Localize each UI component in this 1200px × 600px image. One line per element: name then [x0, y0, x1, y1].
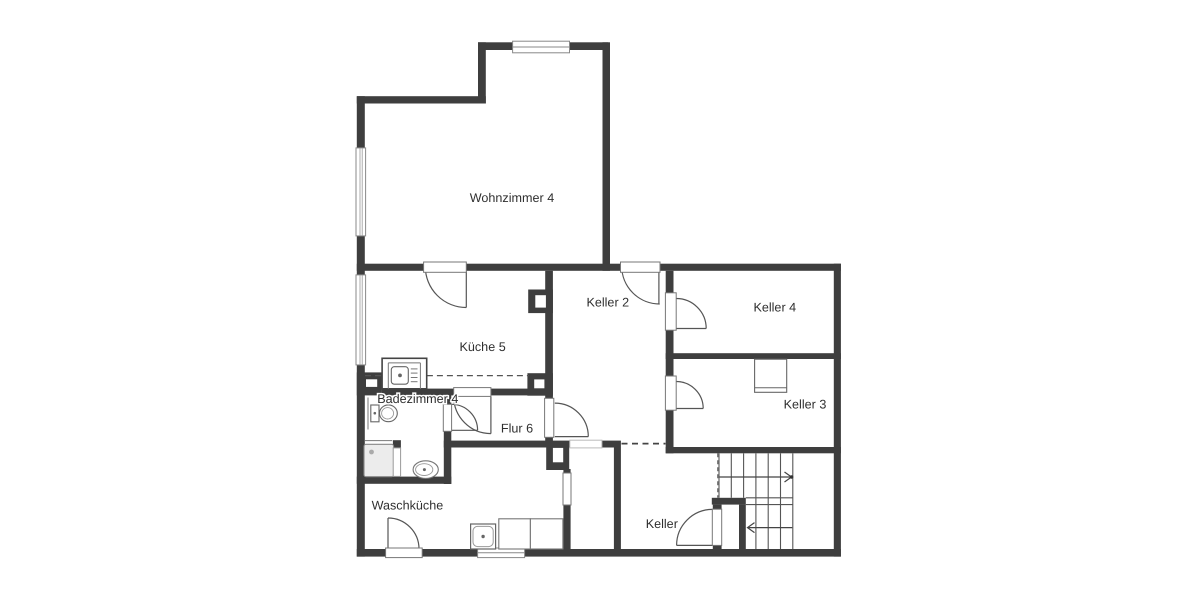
- svg-text:Keller: Keller: [646, 517, 678, 531]
- svg-text:Keller 3: Keller 3: [784, 398, 827, 412]
- svg-text:Badezimmer 4: Badezimmer 4: [377, 392, 458, 406]
- svg-text:Küche 5: Küche 5: [459, 340, 505, 354]
- svg-text:Waschküche: Waschküche: [372, 499, 444, 513]
- svg-text:Wohnzimmer 4: Wohnzimmer 4: [470, 191, 554, 205]
- svg-text:Flur 6: Flur 6: [501, 421, 533, 435]
- svg-text:Keller 4: Keller 4: [753, 301, 796, 315]
- svg-text:Keller 2: Keller 2: [586, 296, 629, 310]
